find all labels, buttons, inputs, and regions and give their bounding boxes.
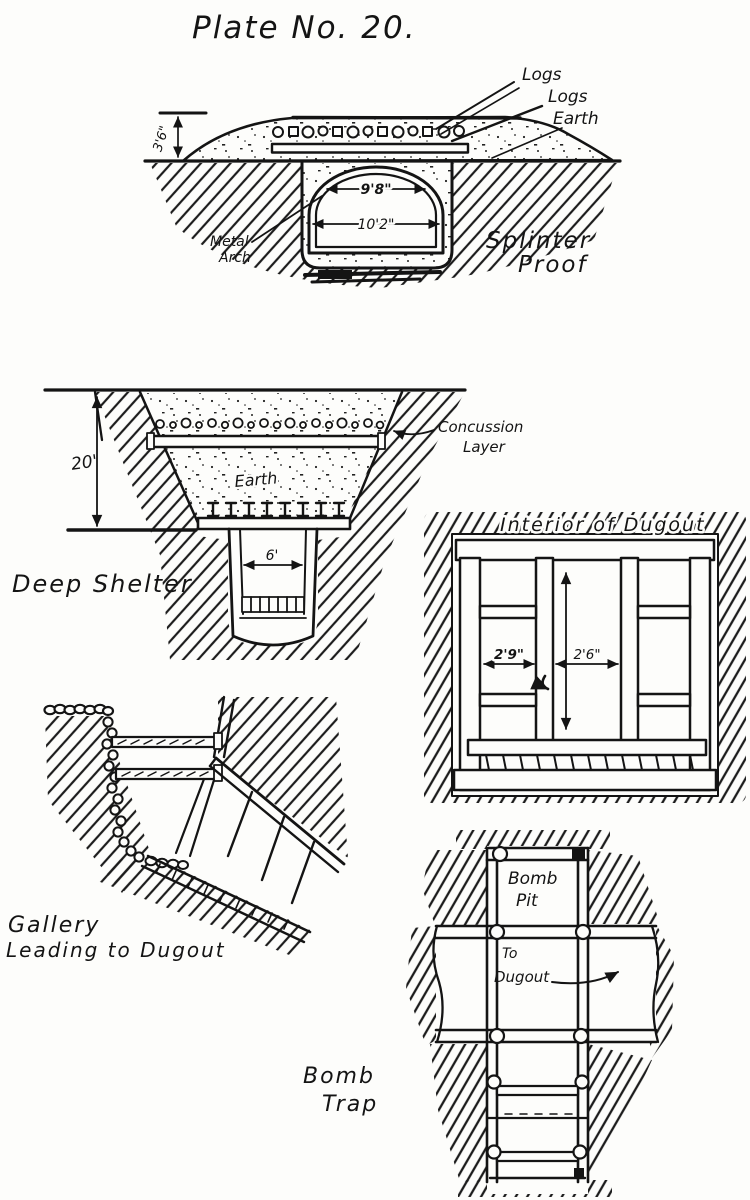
dimension-shaft-width: 6': [244, 548, 302, 565]
metal-arch-outer: [309, 167, 443, 253]
label-layer: Layer: [463, 438, 506, 456]
svg-text:3'6": 3'6": [151, 124, 173, 153]
sandbag-top-row: [45, 705, 114, 715]
inner-post-left: [536, 558, 553, 742]
label-logs-2: Logs: [548, 87, 588, 107]
bottom-sill: [468, 740, 706, 755]
right-bay-rail-upper: [638, 606, 690, 618]
inner-post-right: [621, 558, 638, 742]
caption-leading-to-dugout: Leading to Dugout: [6, 938, 226, 962]
plate-title: Plate No. 20.: [192, 10, 417, 46]
caption-bomb: Bomb: [303, 1064, 375, 1089]
caption-gallery: Gallery: [8, 913, 100, 938]
caption-interior-dugout: Interior of Dugout: [500, 514, 706, 536]
concussion-plank: [152, 436, 380, 447]
caption-proof: Proof: [518, 252, 588, 278]
label-logs-1: Logs: [522, 65, 562, 85]
right-bay-rail-lower: [638, 694, 690, 706]
left-bay-rail-lower: [480, 694, 536, 706]
figure-gallery: Gallery Leading to Dugout: [6, 697, 348, 962]
trench-cross-beams: [112, 733, 222, 781]
svg-text:6': 6': [266, 548, 279, 564]
figure-bomb-trap: Bomb Pit To Dugout Bomb Trap: [303, 830, 674, 1197]
svg-text:20': 20': [70, 451, 99, 474]
upper-earth-fill: [142, 393, 400, 438]
earth-mound: [183, 117, 612, 161]
svg-text:2'6": 2'6": [573, 647, 600, 663]
label-earth-fill: Earth: [234, 468, 278, 491]
bottom-plank: [454, 770, 716, 790]
label-earth: Earth: [553, 109, 599, 129]
label-to-dugout-1: To: [502, 946, 517, 962]
dugout-interior: [452, 534, 718, 796]
plank-cap-left: [147, 433, 154, 449]
rail-plank: [198, 518, 350, 529]
label-bomb-pit-1: Bomb: [508, 869, 557, 889]
left-bay-rail-upper: [480, 606, 536, 618]
label-metal: Metal: [210, 234, 249, 250]
label-arch: Arch: [218, 250, 251, 266]
svg-text:2'9": 2'9": [494, 647, 524, 663]
svg-text:9'8": 9'8": [360, 182, 391, 198]
caption-splinter: Splinter: [486, 228, 591, 254]
shaft-floor-grid: [240, 597, 306, 618]
plate-drawing: Plate No. 20. 9: [0, 0, 750, 1200]
plate-page: Plate No. 20. 9: [0, 0, 750, 1200]
label-concussion: Concussion: [438, 418, 523, 436]
label-to-dugout-2: Dugout: [494, 968, 550, 986]
top-lintel: [456, 540, 714, 560]
shaft-walls: [229, 529, 317, 645]
figure-splinter-proof: 9'8" 10'2" 3'6" Logs Logs Earth Metal Ar…: [145, 65, 620, 288]
plank-cap-right: [378, 433, 385, 449]
mound-plank: [272, 144, 468, 153]
label-bomb-pit-2: Pit: [516, 891, 539, 911]
caption-trap: Trap: [322, 1092, 378, 1117]
caption-deep-shelter: Deep Shelter: [12, 570, 193, 598]
svg-text:10'2": 10'2": [357, 217, 394, 233]
mound-top-line: [293, 118, 520, 119]
figure-interior-dugout: 2'9" 2'6" Interior of Dugout: [424, 512, 746, 803]
